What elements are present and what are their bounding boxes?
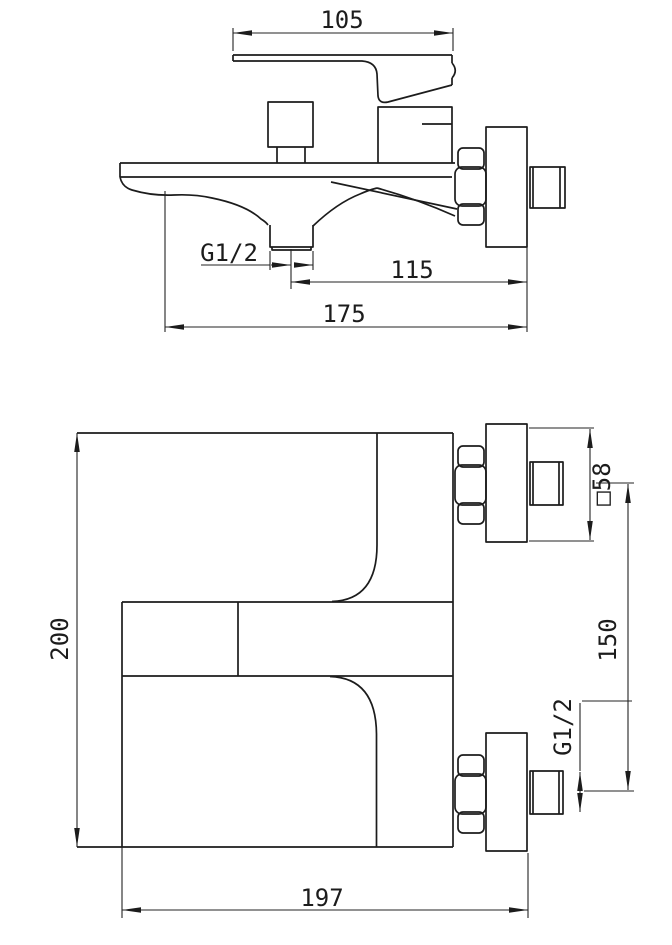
handle-underside xyxy=(233,61,452,102)
threaded-nipple xyxy=(530,167,565,208)
cartridge-outline xyxy=(378,107,452,163)
diverter-knob xyxy=(268,102,313,163)
technical-drawing: 105 G1/2 115 175 xyxy=(0,0,672,945)
dim-label-g12-inlet: G1/2 xyxy=(549,698,577,756)
upper-inner-edge xyxy=(332,433,377,602)
dim-label-115: 115 xyxy=(390,256,433,284)
side-view: 105 G1/2 115 175 xyxy=(120,6,565,332)
wall-flange xyxy=(486,424,527,542)
hex-nut-icon xyxy=(455,446,486,524)
hex-nut-icon xyxy=(455,755,486,833)
knob-outline xyxy=(268,102,313,147)
knob-stem xyxy=(277,147,305,163)
hex-nut-icon xyxy=(455,148,486,225)
dim-label-197: 197 xyxy=(300,884,343,912)
ext-lines xyxy=(529,428,594,541)
wall-union-bottom xyxy=(455,733,563,851)
dimension-150: 150 xyxy=(584,483,634,791)
top-plate xyxy=(120,163,455,177)
spout-back-curve xyxy=(313,188,377,226)
handle-lever xyxy=(233,55,455,102)
dimension-200: 200 xyxy=(46,433,77,847)
spout-underside-curve xyxy=(120,177,268,225)
wall-flange xyxy=(486,733,527,851)
dimension-105: 105 xyxy=(233,6,453,51)
front-view: 200 □58 150 G1/2 197 xyxy=(46,424,634,918)
dim-label-200: 200 xyxy=(46,617,74,660)
dimension-g12-spout: G1/2 xyxy=(200,239,313,270)
dimension-g12-inlet: G1/2 xyxy=(549,698,632,812)
wall-flange xyxy=(486,127,527,247)
leader-line xyxy=(580,701,632,771)
dim-label-175: 175 xyxy=(322,300,365,328)
body-outline xyxy=(77,433,453,847)
wall-union-side xyxy=(455,127,565,247)
handle-end-cap xyxy=(452,63,455,78)
cartridge-body xyxy=(378,107,452,163)
threaded-nipple xyxy=(530,771,563,814)
wall-union-top xyxy=(455,424,563,542)
dim-label-58: □58 xyxy=(588,462,616,505)
spout-crease-line xyxy=(331,182,457,209)
lower-inner-edge xyxy=(330,677,377,848)
dim-label-105: 105 xyxy=(320,6,363,34)
spout xyxy=(120,163,457,250)
spout-tail-curve xyxy=(377,188,455,216)
dim-label-150: 150 xyxy=(594,618,622,661)
dimension-58: □58 xyxy=(529,428,616,541)
spout-nozzle xyxy=(270,225,313,250)
drawing-page: 105 G1/2 115 175 xyxy=(0,0,672,945)
dim-label-g12-spout: G1/2 xyxy=(200,239,258,267)
dimension-197: 197 xyxy=(122,847,528,918)
threaded-nipple xyxy=(530,462,563,505)
